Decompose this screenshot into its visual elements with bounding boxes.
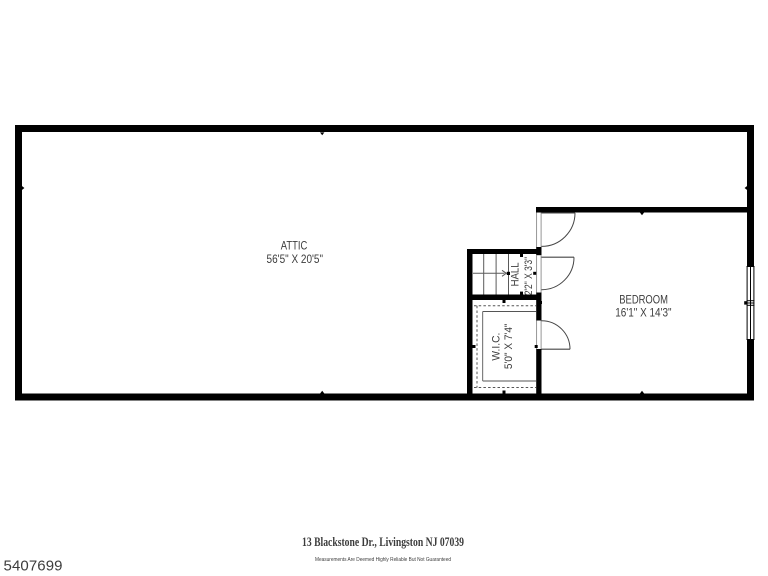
- svg-text:2'2" X 3'3": 2'2" X 3'3": [523, 257, 535, 295]
- svg-text:HALL: HALL: [510, 262, 522, 286]
- svg-text:BEDROOM: BEDROOM: [619, 295, 668, 307]
- svg-text:W.I.C.: W.I.C.: [491, 333, 503, 361]
- svg-text:ATTIC: ATTIC: [281, 241, 308, 253]
- svg-text:5407699: 5407699: [4, 558, 63, 575]
- svg-text:Measurements Are Deemed Highly: Measurements Are Deemed Highly Reliable …: [315, 557, 451, 563]
- svg-text:16'1" X 14'3": 16'1" X 14'3": [615, 308, 671, 320]
- svg-text:5'0" X 7'4": 5'0" X 7'4": [503, 324, 515, 370]
- svg-text:13 Blackstone Dr., Livingston: 13 Blackstone Dr., Livingston NJ 07039: [302, 535, 464, 549]
- svg-text:56'5" X 20'5": 56'5" X 20'5": [267, 254, 324, 266]
